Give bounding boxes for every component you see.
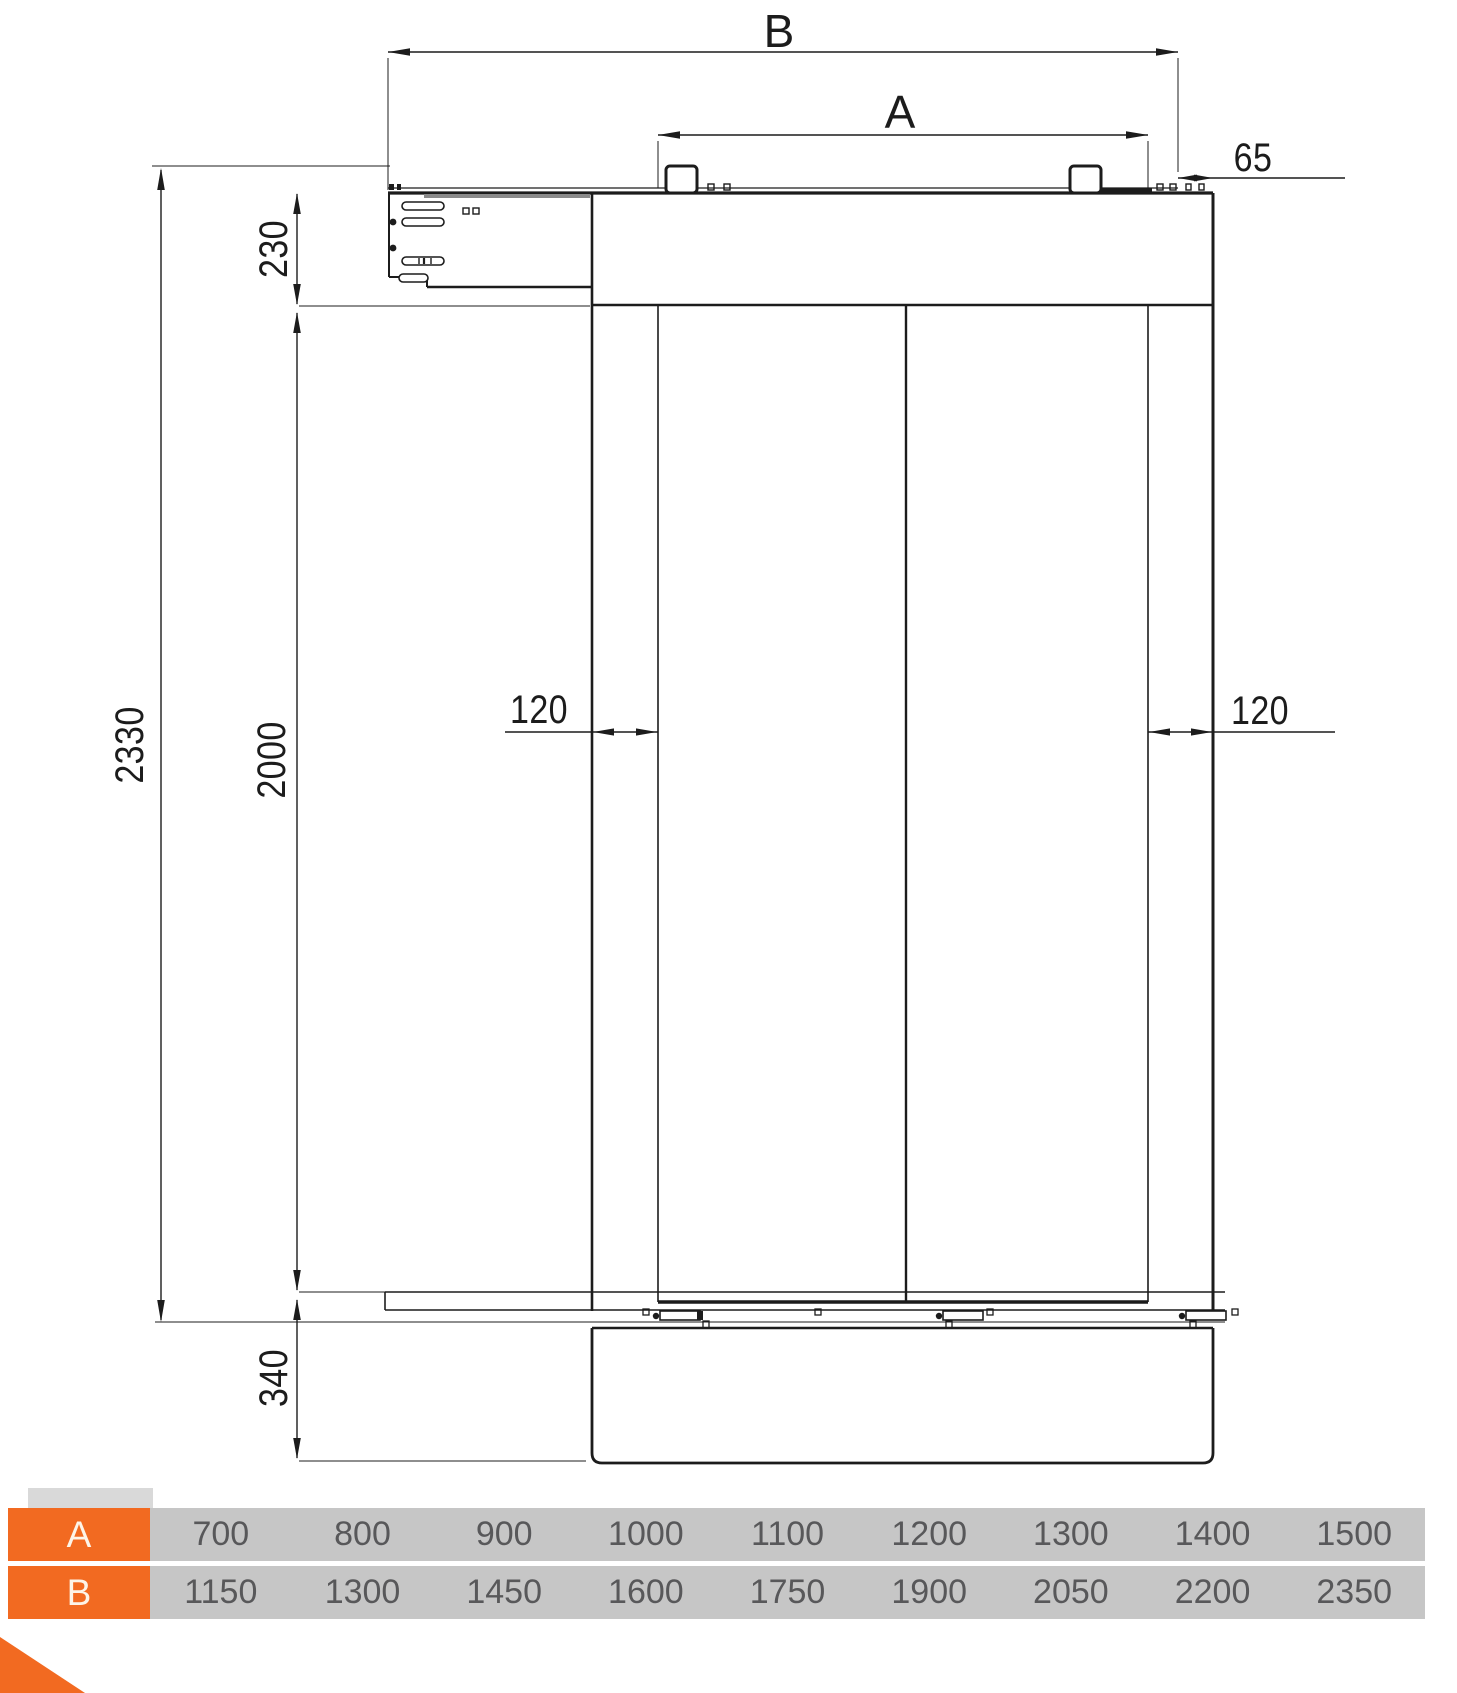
dim-a-label: A [885, 86, 916, 138]
dim-340-label: 340 [250, 1349, 295, 1407]
door-stop-clamp-right [1070, 166, 1101, 193]
dim-2330-label: 2330 [106, 706, 151, 783]
drive-rail-strip [424, 194, 590, 198]
technical-drawing: B A 65 2330 [0, 0, 1457, 1693]
bottom-wall-section [592, 1328, 1213, 1463]
dim-65-label: 65 [1234, 134, 1273, 179]
dim-230-label: 230 [250, 220, 295, 278]
dimension-b: B [388, 5, 1178, 190]
dimension-2000: 2000 [248, 312, 385, 1292]
corner-accent-triangle [0, 1637, 85, 1693]
door-stop-clamp-left [666, 166, 697, 193]
dim-b-label: B [764, 5, 795, 57]
door-frame [592, 193, 1213, 1311]
dimension-120-left: 120 [505, 686, 658, 735]
dim-2000-label: 2000 [248, 721, 293, 798]
top-track [388, 166, 1213, 193]
dimension-65: 65 [1178, 134, 1345, 181]
dimension-340: 340 [250, 1299, 586, 1461]
dim-120-right-label: 120 [1231, 687, 1289, 732]
drive-unit-box [389, 184, 592, 287]
dim-120-left-label: 120 [510, 686, 568, 731]
dimension-120-right: 120 [1148, 687, 1335, 735]
floor-track [155, 1292, 1238, 1328]
dimension-drawing-page: B A 65 2330 [0, 0, 1457, 1693]
track-mount-bar [1100, 188, 1152, 193]
